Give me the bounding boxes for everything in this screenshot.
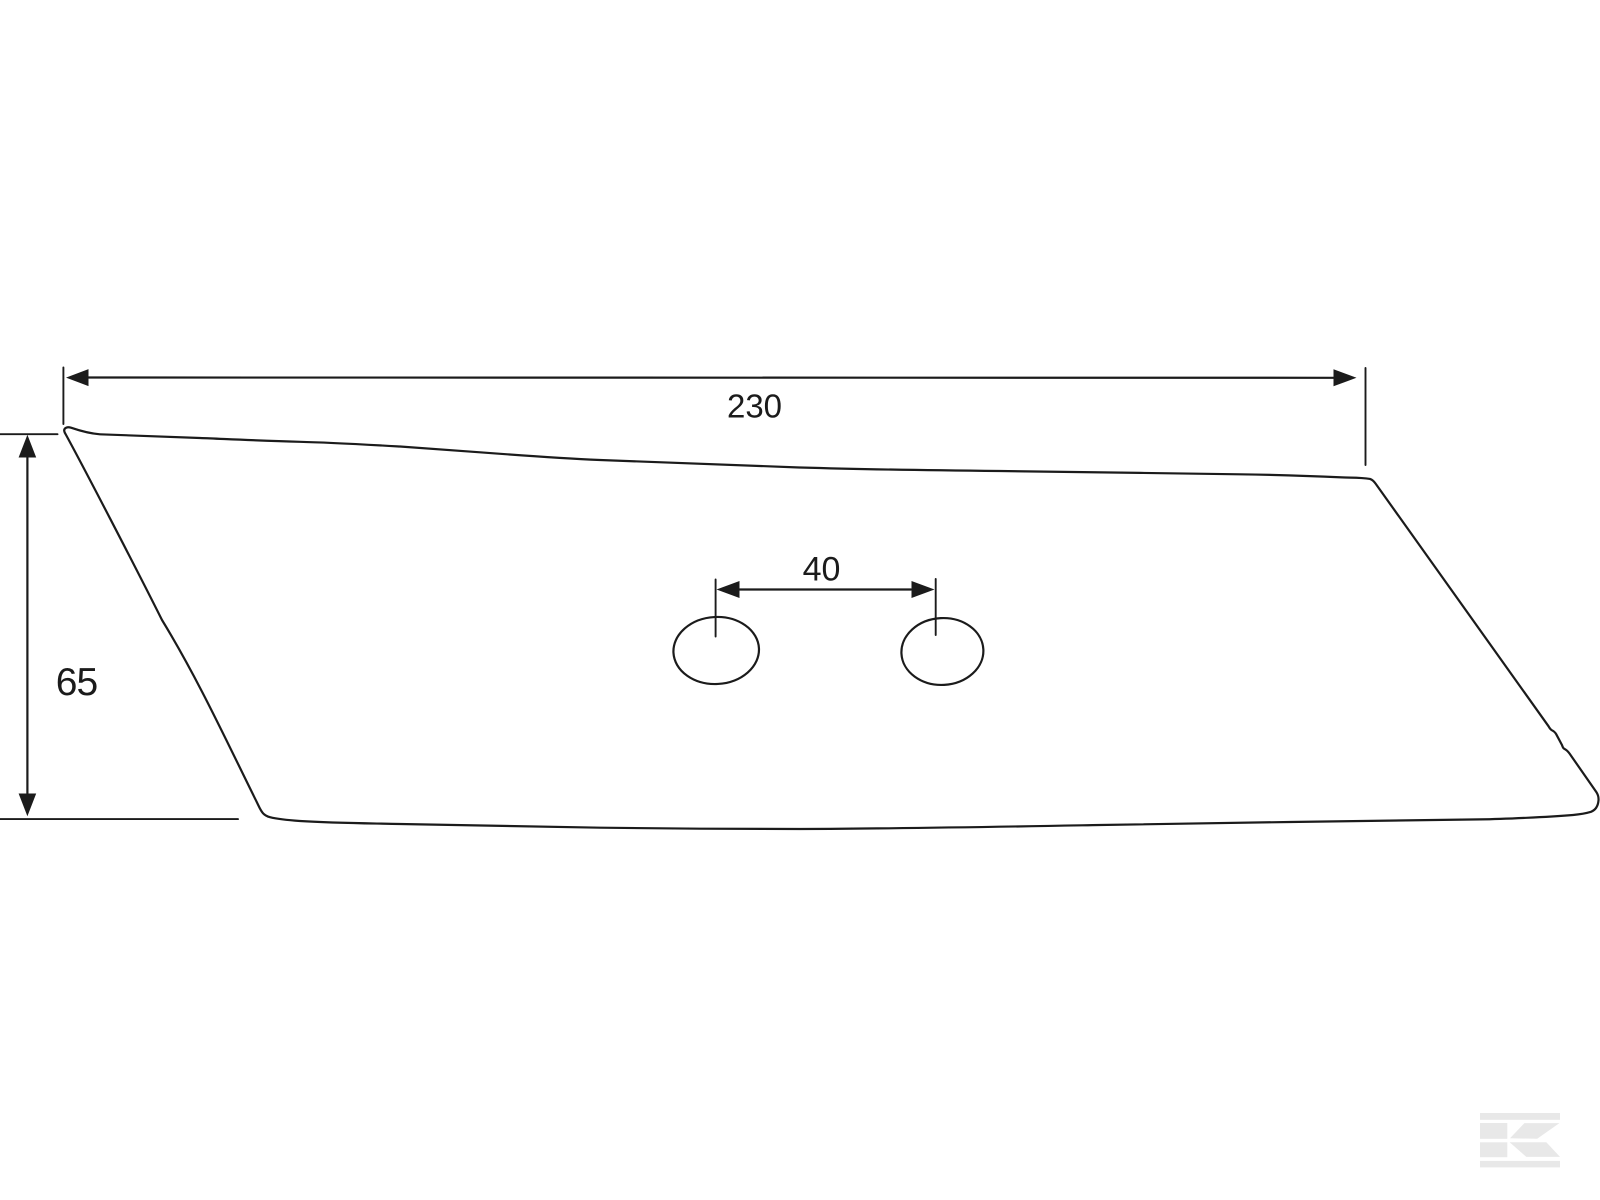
svg-text:40: 40: [803, 551, 841, 589]
svg-text:230: 230: [727, 388, 782, 425]
svg-text:65: 65: [56, 661, 98, 704]
